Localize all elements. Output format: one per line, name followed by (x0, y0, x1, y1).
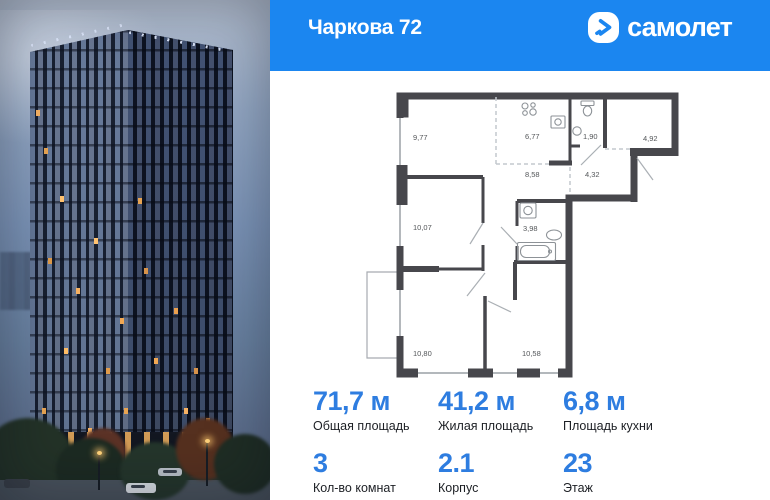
room-area-label: 1,90 (583, 132, 598, 141)
fixtures (518, 101, 595, 261)
samolet-logo-icon (588, 12, 619, 43)
stat-value: 23 (563, 448, 688, 478)
door-swings (467, 145, 653, 312)
stat-rooms: 3 Кол-во комнат (313, 448, 438, 496)
room-area-label: 6,77 (525, 132, 540, 141)
washbasin-icon (573, 127, 581, 135)
stat-value: 6,8 м (563, 386, 688, 416)
room-area-label: 10,80 (413, 349, 432, 358)
bathtub-icon (518, 243, 556, 261)
stat-label: Площадь кухни (563, 419, 688, 434)
room-area-label: 4,32 (585, 170, 600, 179)
toilet-icon (581, 101, 594, 116)
dashed-zone-lines (496, 97, 630, 195)
room-area-label: 10,07 (413, 223, 432, 232)
stat-kitchen-area: 6,8 м Площадь кухни (563, 386, 688, 434)
room-area-label: 8,58 (525, 170, 540, 179)
stove-icon (522, 103, 536, 116)
stat-floor: 23 Этаж (563, 448, 688, 496)
stat-living-area: 41,2 м Жилая площадь (438, 386, 563, 434)
stat-label: Корпус (438, 481, 563, 496)
washer-icon (520, 203, 536, 218)
stat-label: Этаж (563, 481, 688, 496)
samolet-logo-text: самолет (627, 14, 732, 41)
room-area-label: 10,58 (522, 349, 541, 358)
stat-value: 71,7 м (313, 386, 438, 416)
stat-building: 2.1 Корпус (438, 448, 563, 496)
stat-label: Общая площадь (313, 419, 438, 434)
stat-value: 41,2 м (438, 386, 563, 416)
project-title: Чаркова 72 (308, 16, 422, 40)
floor-plan: 9,77 6,77 1,90 4,92 8,58 4,32 10,07 3,98… (361, 90, 679, 385)
apartment-stats: 71,7 м Общая площадь 41,2 м Жилая площад… (313, 386, 688, 496)
stat-value: 2.1 (438, 448, 563, 478)
header: Чаркова 72 самолет (270, 0, 770, 71)
stat-label: Кол-во комнат (313, 481, 438, 496)
stat-label: Жилая площадь (438, 419, 563, 434)
windows (396, 118, 558, 378)
room-area-label: 4,92 (643, 134, 658, 143)
stat-value: 3 (313, 448, 438, 478)
listing-card: Чаркова 72 самолет (0, 0, 770, 500)
stat-total-area: 71,7 м Общая площадь (313, 386, 438, 434)
kitchen-sink-icon (551, 116, 565, 128)
samolet-logo: самолет (588, 12, 732, 43)
room-area-label: 3,98 (523, 224, 538, 233)
vignette (0, 0, 270, 500)
balcony-outline (367, 272, 398, 358)
basin-icon (547, 230, 562, 240)
room-area-label: 9,77 (413, 133, 428, 142)
building-photo (0, 0, 270, 500)
